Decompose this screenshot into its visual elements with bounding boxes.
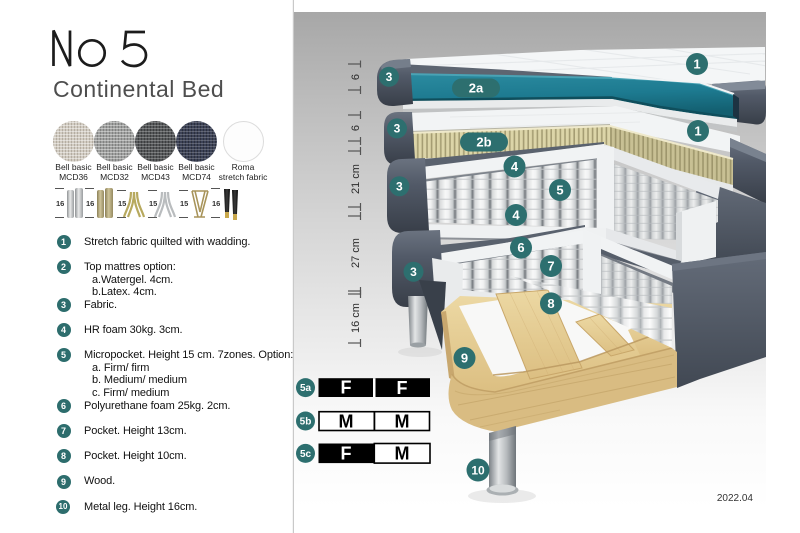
svg-text:6: 6 (350, 125, 362, 131)
svg-text:5c: 5c (300, 449, 312, 460)
svg-text:15: 15 (149, 199, 157, 208)
svg-text:3: 3 (396, 179, 403, 193)
svg-text:3: 3 (386, 70, 393, 84)
svg-text:3: 3 (394, 122, 401, 136)
svg-text:5b: 5b (300, 417, 312, 428)
svg-text:27 cm: 27 cm (350, 238, 362, 268)
svg-text:M: M (395, 444, 410, 464)
svg-text:4: 4 (512, 208, 520, 223)
svg-text:16: 16 (86, 199, 94, 208)
svg-text:3: 3 (410, 265, 417, 279)
svg-text:9: 9 (461, 351, 468, 366)
svg-text:15: 15 (180, 199, 188, 208)
svg-text:M: M (339, 411, 354, 431)
svg-text:16 cm: 16 cm (350, 303, 362, 333)
svg-text:F: F (341, 378, 352, 398)
svg-text:8: 8 (547, 296, 554, 311)
svg-text:2022.04: 2022.04 (717, 493, 754, 504)
svg-text:4: 4 (511, 159, 519, 174)
svg-text:21 cm: 21 cm (350, 164, 362, 194)
svg-text:1: 1 (693, 57, 700, 72)
svg-text:6: 6 (517, 240, 524, 255)
svg-text:1: 1 (694, 124, 701, 139)
svg-text:5: 5 (556, 183, 563, 198)
svg-text:F: F (341, 444, 352, 464)
svg-text:6: 6 (350, 74, 362, 80)
svg-text:10: 10 (471, 464, 485, 478)
svg-text:16: 16 (56, 199, 64, 208)
svg-text:M: M (395, 411, 410, 431)
svg-text:F: F (397, 378, 408, 398)
svg-text:7: 7 (547, 259, 554, 274)
svg-text:16: 16 (212, 199, 220, 208)
svg-text:5a: 5a (300, 383, 312, 394)
svg-text:2b: 2b (476, 135, 491, 150)
svg-text:15: 15 (118, 199, 126, 208)
svg-text:2a: 2a (469, 81, 484, 96)
